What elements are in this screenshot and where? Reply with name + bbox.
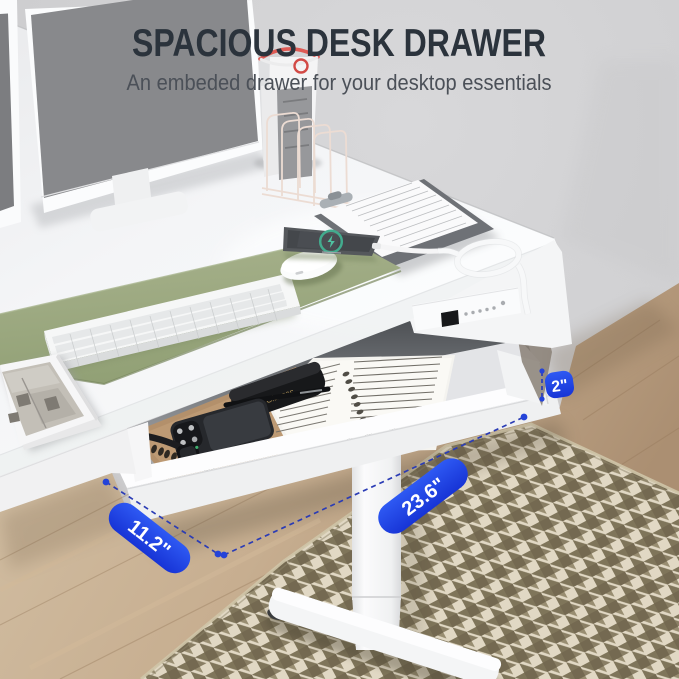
svg-text:2": 2": [550, 377, 569, 396]
svg-text:SPACIOUS DESK DRAWER: SPACIOUS DESK DRAWER: [132, 22, 546, 65]
svg-text:An embeded drawer for your des: An embeded drawer for your desktop essen…: [127, 70, 552, 95]
